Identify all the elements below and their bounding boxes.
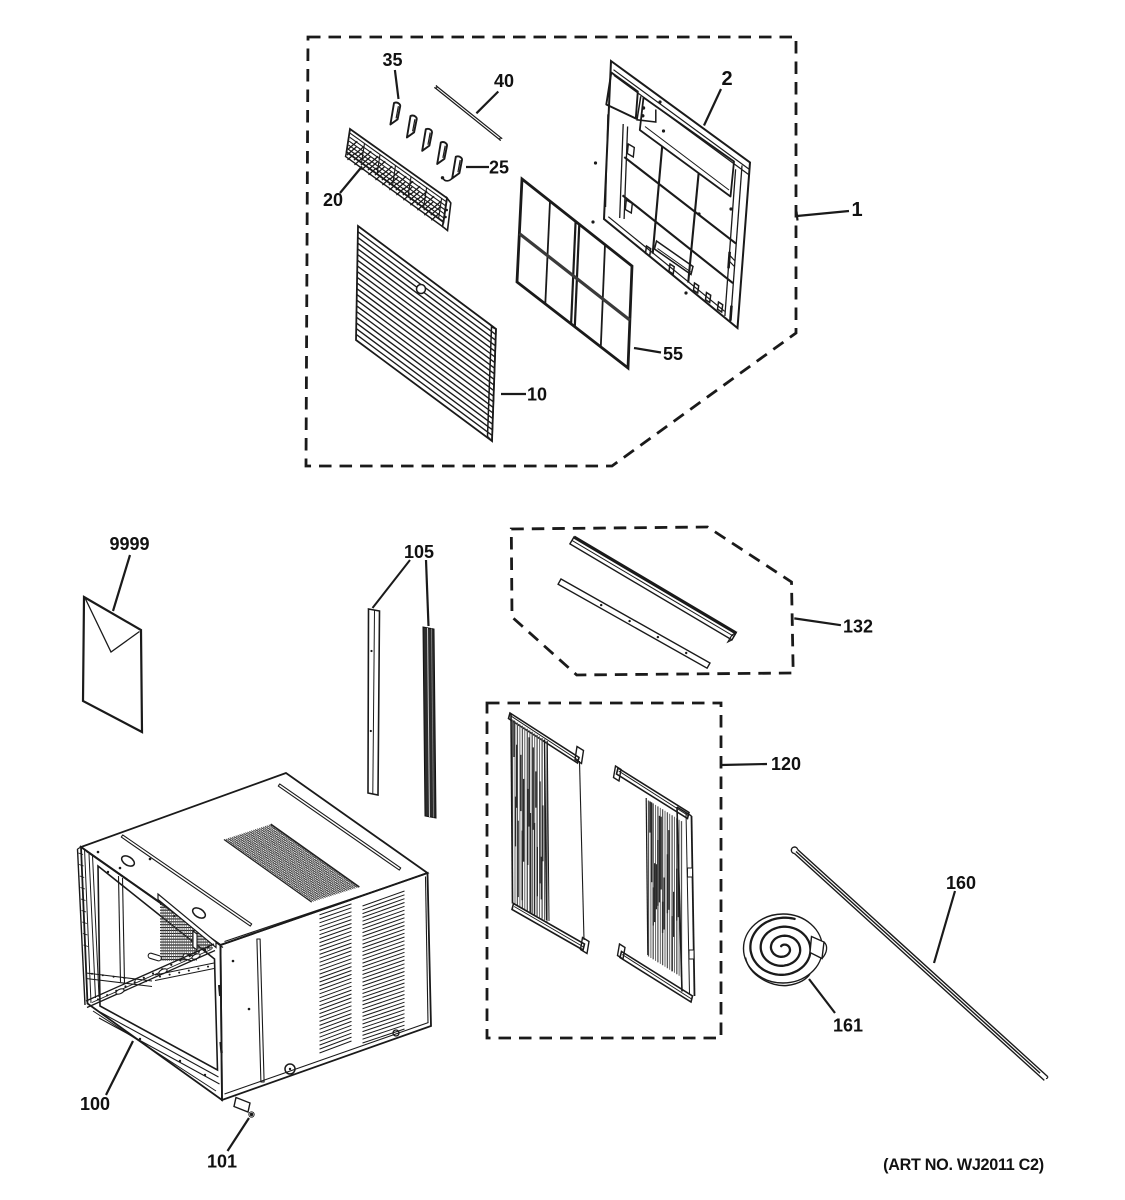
svg-text:(ART NO. WJ2011 C2): (ART NO. WJ2011 C2) [883, 1156, 1044, 1174]
svg-text:2: 2 [721, 68, 732, 90]
svg-text:101: 101 [207, 1152, 237, 1172]
svg-text:9999: 9999 [109, 534, 149, 554]
svg-text:100: 100 [80, 1094, 110, 1114]
svg-text:1: 1 [851, 199, 862, 221]
svg-text:25: 25 [489, 158, 509, 178]
svg-text:105: 105 [404, 542, 434, 562]
svg-text:160: 160 [946, 873, 976, 893]
svg-text:132: 132 [843, 617, 873, 637]
svg-text:35: 35 [382, 50, 402, 70]
svg-text:40: 40 [494, 71, 514, 91]
svg-text:20: 20 [323, 190, 343, 210]
svg-text:161: 161 [833, 1016, 863, 1036]
svg-text:55: 55 [663, 344, 683, 364]
svg-text:10: 10 [527, 385, 547, 405]
svg-text:120: 120 [771, 754, 801, 774]
